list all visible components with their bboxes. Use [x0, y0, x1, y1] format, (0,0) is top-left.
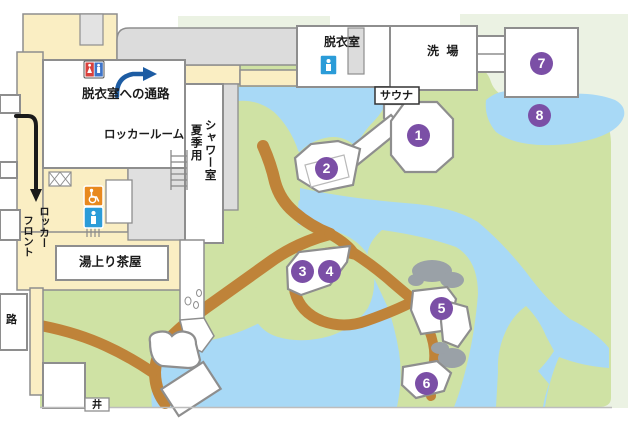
restroom-male-female-icon: [84, 61, 104, 78]
locker-room-area: [43, 60, 185, 168]
map-marker-5: 5: [430, 297, 453, 320]
hatched-box-icon: [49, 172, 71, 186]
map-marker-7: 7: [530, 52, 553, 75]
toilet-icon-locker: [84, 207, 103, 228]
map-marker-4: 4: [318, 260, 341, 283]
locker-room-label: ロッカールーム: [104, 129, 184, 142]
onsen-facility-map: 脱衣室への通路 ロッカールーム 夏季用 シャワー室 脱衣室 洗 場 サウナ ロッ…: [0, 0, 640, 426]
map-marker-2: 2: [315, 157, 338, 180]
map-marker-6: 6: [415, 372, 438, 395]
locker-front-label: ロッカー フロント: [21, 206, 52, 257]
dressing-room-label: 脱衣室: [324, 36, 360, 49]
tea-house-label: 湯上り茶屋: [79, 256, 142, 270]
passage-label: 脱衣室への通路: [82, 88, 170, 102]
tub-blob: [150, 332, 200, 369]
toilet-icon-dressing: [320, 55, 337, 75]
washing-area-label: 洗 場: [427, 45, 460, 58]
map-marker-3: 3: [291, 260, 314, 283]
summer-use-label: 夏季用: [189, 124, 202, 162]
well-partial-label: 井: [92, 400, 102, 411]
sauna-label: サウナ: [380, 90, 413, 102]
shower-room-label: シャワー室: [203, 119, 216, 182]
wheelchair-icon: [84, 186, 103, 206]
map-marker-1: 1: [407, 124, 430, 147]
map-marker-8: 8: [528, 104, 551, 127]
path-partial-label: 路: [6, 314, 17, 326]
